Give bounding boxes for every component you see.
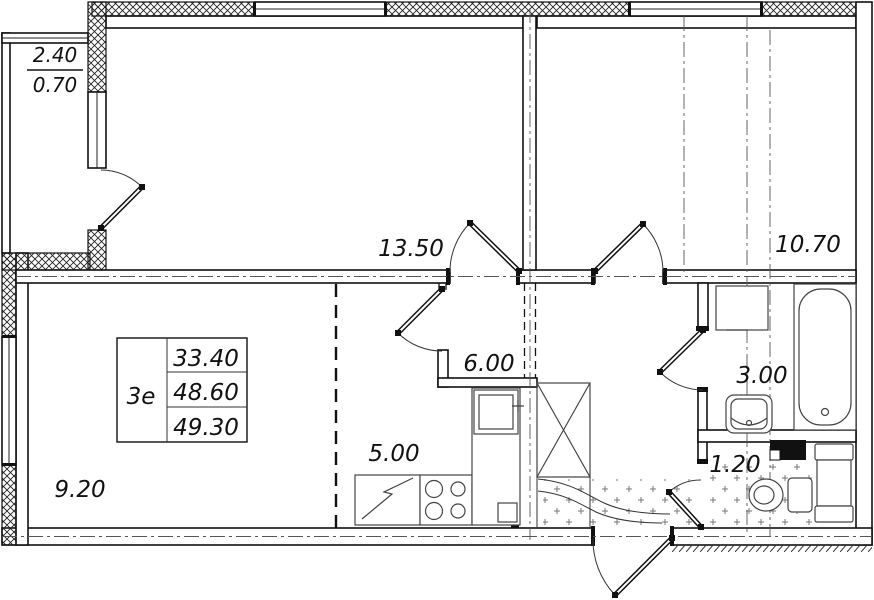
- wardrobe-x-icon: [537, 383, 590, 477]
- balcony-wall-hatch-top: [88, 2, 106, 92]
- door-swing-arc: [398, 333, 442, 351]
- room2-door: [592, 221, 663, 274]
- balcony-parapet-left: [2, 33, 10, 253]
- left-wall-inner-leaf: [16, 253, 28, 545]
- bottom-wall-section-ticks: [672, 545, 872, 552]
- wall-room1-room2: [523, 16, 536, 270]
- bathroom-fixtures: [716, 284, 856, 433]
- cabinet-column: [817, 460, 851, 506]
- balcony-door: [98, 170, 145, 231]
- area-stamp-table: 3е 33.40 48.60 49.30: [117, 338, 247, 442]
- kitchen-sink-fixture: [355, 475, 420, 525]
- top-wall-hatch-2: [385, 2, 630, 16]
- stamp-total-area: 49.30: [173, 415, 239, 441]
- bathroom-door: [657, 327, 706, 390]
- door-swing-arc: [101, 170, 142, 187]
- door-swing-arc: [450, 223, 470, 272]
- floor-plan-drawing: 3е 33.40 48.60 49.30 2.40 0.70 13.50 10.…: [0, 0, 874, 600]
- bath-wc-divider-wall: [698, 390, 707, 462]
- room2-area-label: 10.70: [775, 232, 841, 258]
- cabinet-column-bottom: [815, 506, 853, 522]
- bath-area-label: 3.00: [736, 363, 787, 389]
- stamp-flat-type: 3е: [127, 384, 156, 410]
- top-wall-hatch-3: [762, 2, 856, 16]
- door-swing-arc: [593, 538, 615, 595]
- toilet-tank: [788, 478, 812, 512]
- room1-area-label: 13.50: [378, 236, 444, 262]
- washing-machine-fixture: [716, 286, 768, 330]
- top-wall-hatch-1: [92, 2, 255, 16]
- balcony-reduced-area-label: 0.70: [33, 73, 78, 97]
- floor-plan-canvas: 3е 33.40 48.60 49.30 2.40 0.70 13.50 10.…: [0, 0, 874, 600]
- wc-fixtures: [749, 440, 853, 522]
- balcony-wall-hatch-bottom: [88, 230, 106, 270]
- top-wall-inner-leaf-left: [106, 16, 523, 28]
- balcony-wall-hatch-bottom2: [2, 253, 90, 270]
- cabinet-column-top: [815, 444, 853, 460]
- living-area-label: 9.20: [54, 477, 105, 503]
- kitchen-area-label: 5.00: [368, 441, 419, 467]
- hallway-door: [395, 286, 445, 351]
- kitchen-nook-wall: [438, 378, 537, 387]
- top-wall-inner-leaf-right: [537, 16, 856, 28]
- stamp-area: 48.60: [173, 380, 239, 406]
- balcony-area-label: 2.40: [33, 43, 78, 67]
- stamp-living-area: 33.40: [173, 346, 239, 372]
- hall-area-label: 6.00: [463, 351, 514, 377]
- left-wall-hatch-bottom: [2, 465, 16, 545]
- door-swing-arc: [660, 372, 703, 390]
- bath-wall-upper: [698, 283, 708, 330]
- room1-door: [450, 220, 522, 274]
- wc-area-label: 1.20: [709, 452, 760, 478]
- right-wall: [856, 2, 872, 545]
- entry-door: [593, 535, 675, 598]
- door-swing-arc: [643, 224, 663, 272]
